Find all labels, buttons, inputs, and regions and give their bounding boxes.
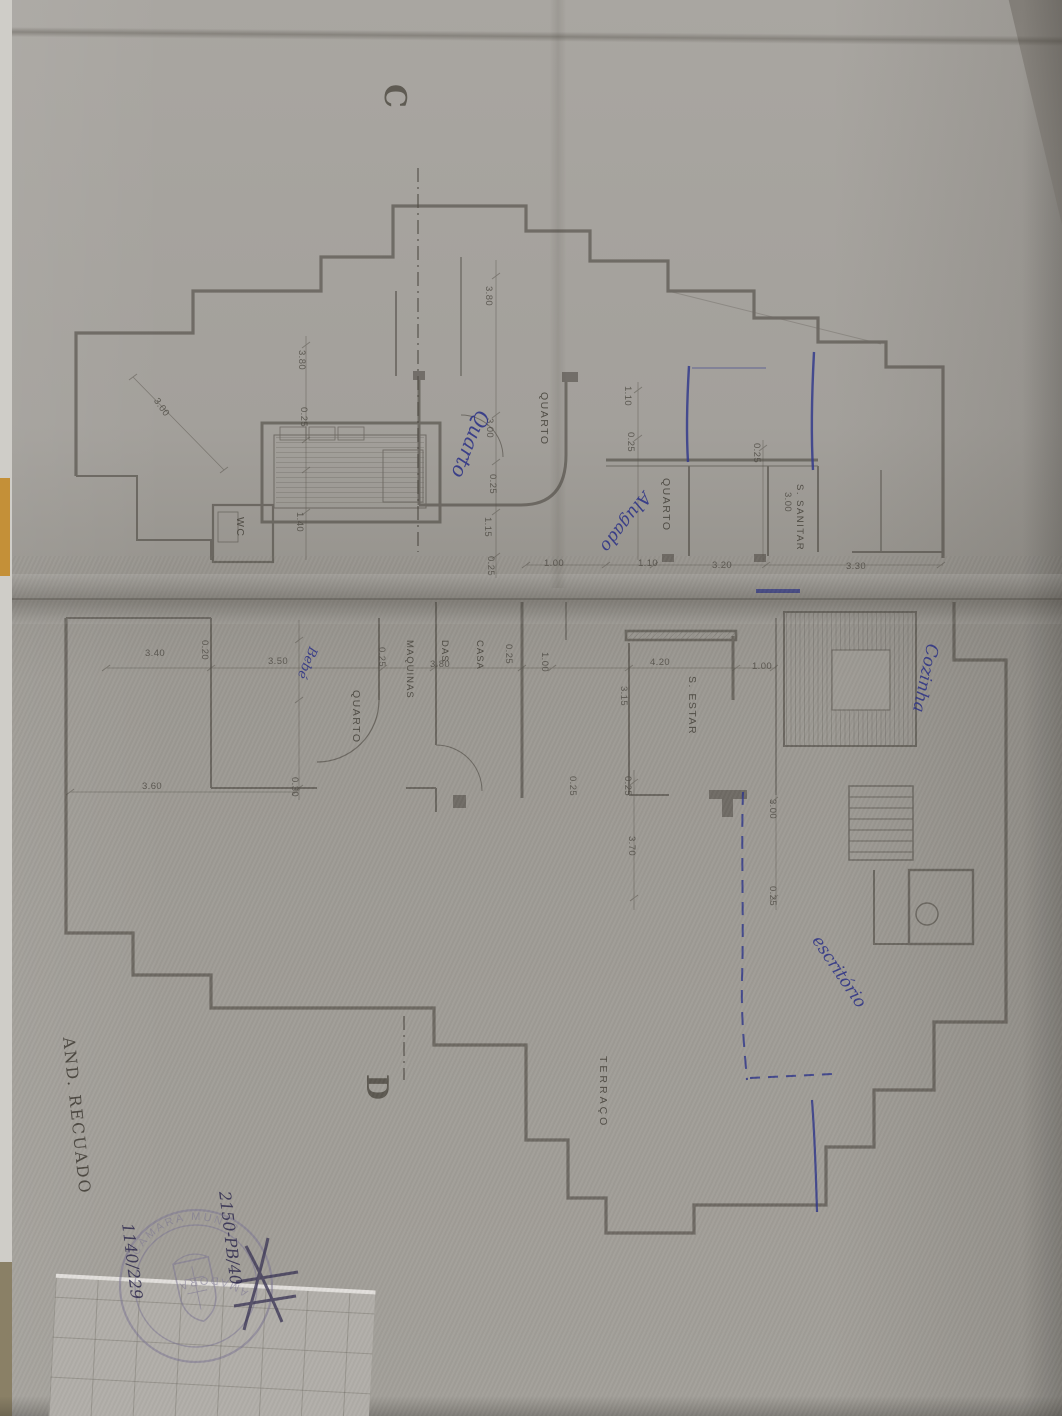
dimension-label: 0.25 — [622, 776, 633, 796]
dimension-label: 1.15 — [482, 517, 493, 537]
dimension-label: 0.25 — [485, 556, 496, 576]
section-marker-c: C — [377, 84, 412, 108]
dimension-label: 0.25 — [625, 432, 636, 452]
room-label-quarto-3: QUARTO — [350, 690, 362, 744]
dimension-label: 3.70 — [626, 836, 637, 856]
photo-of-floor-plan-document: CÂMARA MUNICIPAL AMADORA C D QUARTO QUAR… — [0, 0, 1062, 1416]
dimension-label: 3.20 — [712, 560, 732, 571]
room-label-terraco: TERRAÇO — [597, 1056, 609, 1128]
dimension-label: 0.25 — [376, 647, 387, 667]
dimension-label: 1.10 — [622, 386, 633, 406]
dimension-label: 3.15 — [618, 686, 629, 706]
dimension-label: 1.00 — [539, 652, 550, 672]
floor-plan-drawing: CÂMARA MUNICIPAL AMADORA — [12, 0, 1062, 1416]
dimension-label: 3.80 — [483, 286, 494, 306]
dimension-label: 1.00 — [752, 661, 772, 672]
dimension-label: 0.25 — [503, 644, 514, 664]
walls-lower — [66, 602, 1006, 1233]
dimension-label: 3.40 — [145, 648, 165, 659]
folder-sliver — [0, 478, 10, 576]
ink-annotation-lines — [687, 352, 832, 1212]
dimension-label: 1.10 — [638, 558, 658, 569]
dimension-label: 4.20 — [650, 657, 670, 668]
dimension-label: 3.50 — [268, 656, 288, 667]
dimension-label: 0.25 — [298, 407, 309, 427]
dimension-label: 0.25 — [567, 776, 578, 796]
dimension-label: 3.60 — [142, 781, 162, 792]
section-marker-d: D — [359, 1074, 394, 1100]
blueprint-paper: CÂMARA MUNICIPAL AMADORA C D QUARTO QUAR… — [12, 0, 1062, 1416]
dimension-label: 3.80 — [296, 350, 307, 370]
dimension-label: 3.00 — [767, 799, 778, 819]
dimension-label: 0.25 — [751, 443, 762, 463]
dimension-label: 0.25 — [767, 886, 778, 906]
dimension-label: 3.30 — [846, 561, 866, 572]
dimension-label: 3.00 — [782, 492, 793, 512]
room-label-quarto-1: QUARTO — [538, 392, 550, 446]
dimension-label: 3.80 — [430, 659, 450, 670]
dimension-label: 1.40 — [294, 512, 305, 532]
room-label-quarto-2: QUARTO — [660, 478, 672, 532]
room-label-wc: WC — [234, 517, 246, 538]
dimension-label: 0.20 — [199, 640, 210, 660]
room-label-s-estar: S. ESTAR — [686, 676, 698, 735]
fold-crease-line — [12, 598, 1062, 600]
section-line-cd — [404, 168, 418, 1080]
dimension-label: 0.25 — [487, 474, 498, 494]
dimension-label: 0.30 — [289, 777, 300, 797]
room-label-sanitar: S. SANITAR — [794, 484, 805, 551]
vertical-fold-crease — [550, 0, 566, 588]
